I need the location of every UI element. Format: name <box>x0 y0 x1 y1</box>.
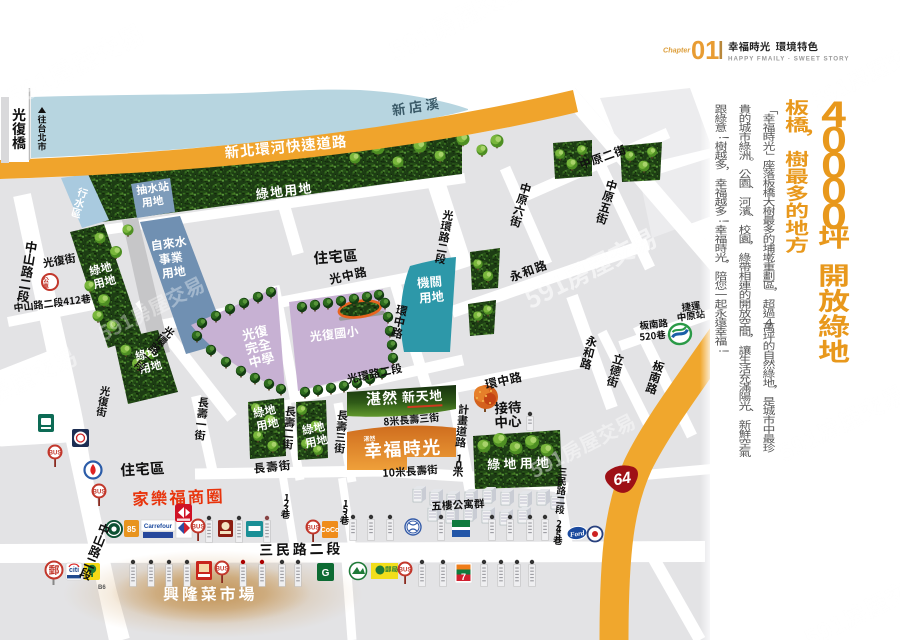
svg-text:citi: citi <box>69 567 79 574</box>
svg-text:B6: B6 <box>98 585 106 591</box>
svg-text:HAPPY FMAILY · SWEET STORY: HAPPY FMAILY · SWEET STORY <box>728 56 849 63</box>
svg-text:7: 7 <box>461 572 466 582</box>
svg-text:BUS: BUS <box>399 568 412 574</box>
svg-text:G: G <box>322 568 330 579</box>
svg-text:Carrefour: Carrefour <box>144 523 173 530</box>
svg-text:CoCo: CoCo <box>321 527 340 534</box>
svg-text:BUS: BUS <box>49 451 62 457</box>
svg-text:85: 85 <box>127 525 136 534</box>
svg-text:BUS: BUS <box>216 567 229 573</box>
svg-text:BUS: BUS <box>307 526 320 532</box>
svg-text:01: 01 <box>691 37 719 65</box>
svg-text:BUS: BUS <box>93 490 106 496</box>
svg-text:64: 64 <box>612 470 633 490</box>
svg-text:BUS: BUS <box>192 525 205 531</box>
svg-text:Chapter: Chapter <box>663 46 691 55</box>
